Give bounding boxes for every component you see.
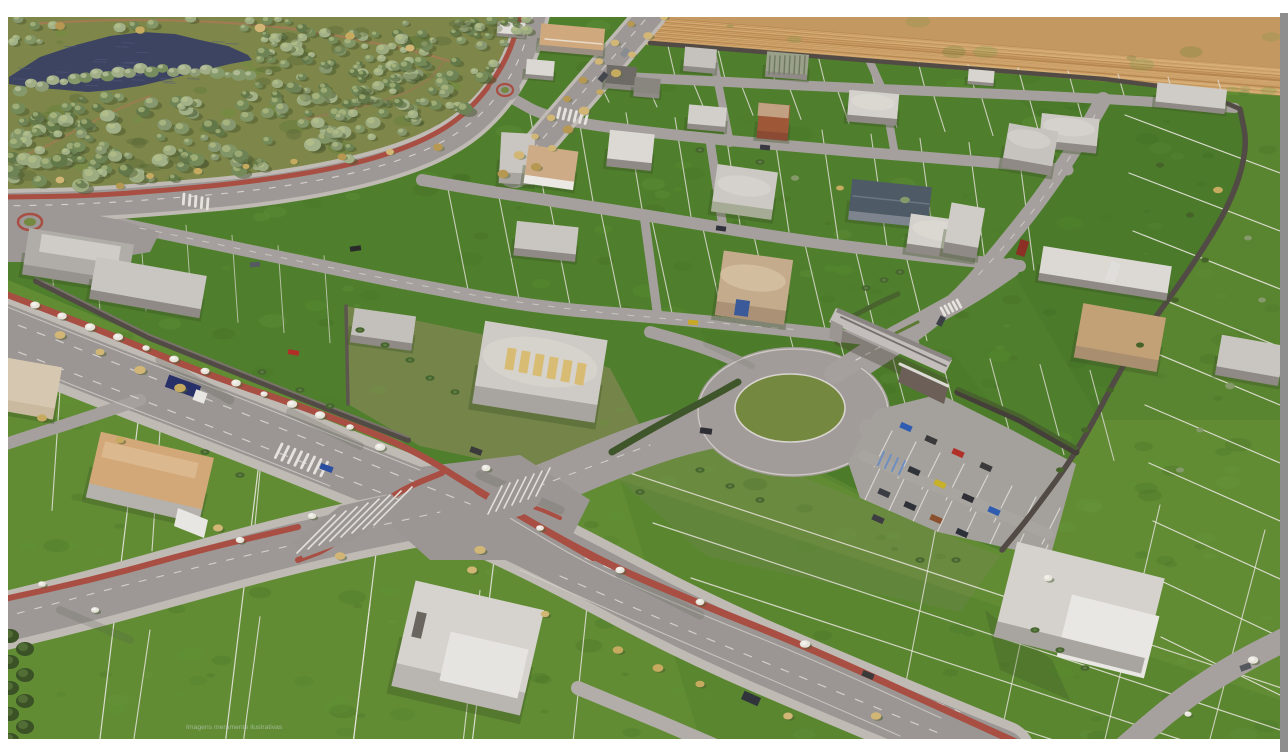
svg-text:Imagens meramente ilustrativas: Imagens meramente ilustrativas xyxy=(186,724,283,731)
